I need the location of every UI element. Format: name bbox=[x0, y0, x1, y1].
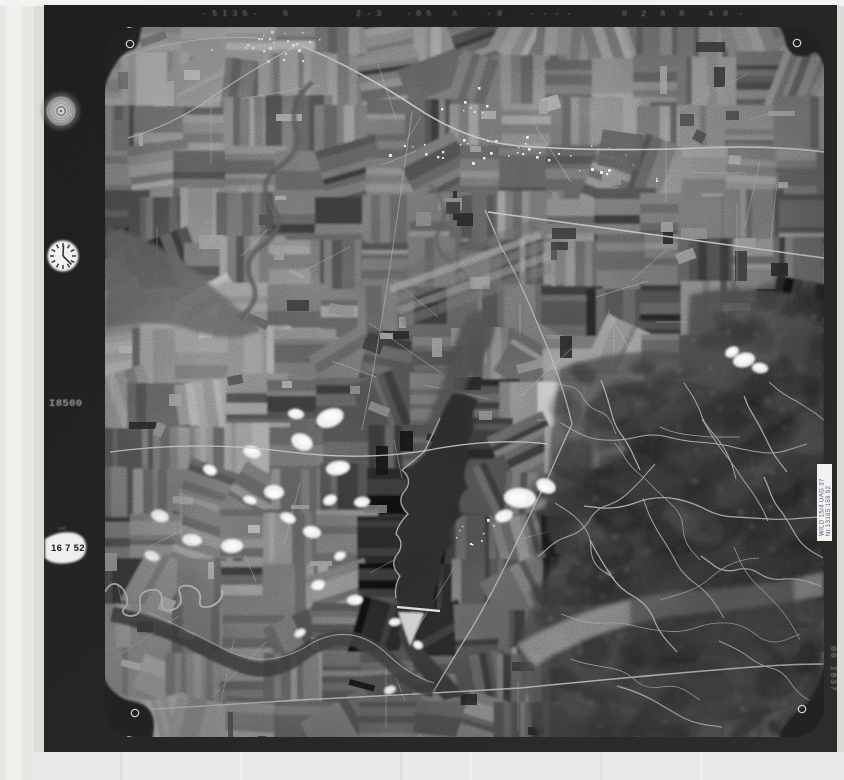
svg-text:A: A bbox=[452, 9, 462, 19]
svg-text:2-3: 2-3 bbox=[356, 9, 386, 19]
svg-text:00 I837: 00 I837 bbox=[828, 646, 838, 692]
svg-text:----: ---- bbox=[530, 9, 578, 19]
svg-text:-0: -0 bbox=[486, 9, 508, 19]
svg-text:-5I35-: -5I35- bbox=[202, 9, 263, 19]
svg-text:5: 5 bbox=[283, 9, 293, 19]
svg-text:WILD 15/4 UAG 37: WILD 15/4 UAG 37 bbox=[820, 478, 826, 536]
svg-text:546: 546 bbox=[58, 526, 66, 532]
svg-text:-05: -05 bbox=[406, 9, 436, 19]
svg-text:0280: 0280 bbox=[622, 9, 698, 19]
svg-text:40-: 40- bbox=[708, 9, 753, 19]
svg-text:16 7 52: 16 7 52 bbox=[51, 543, 85, 554]
svg-text:I8500: I8500 bbox=[49, 398, 83, 410]
svg-text:Nr.13195 159 92: Nr.13195 159 92 bbox=[826, 485, 832, 536]
